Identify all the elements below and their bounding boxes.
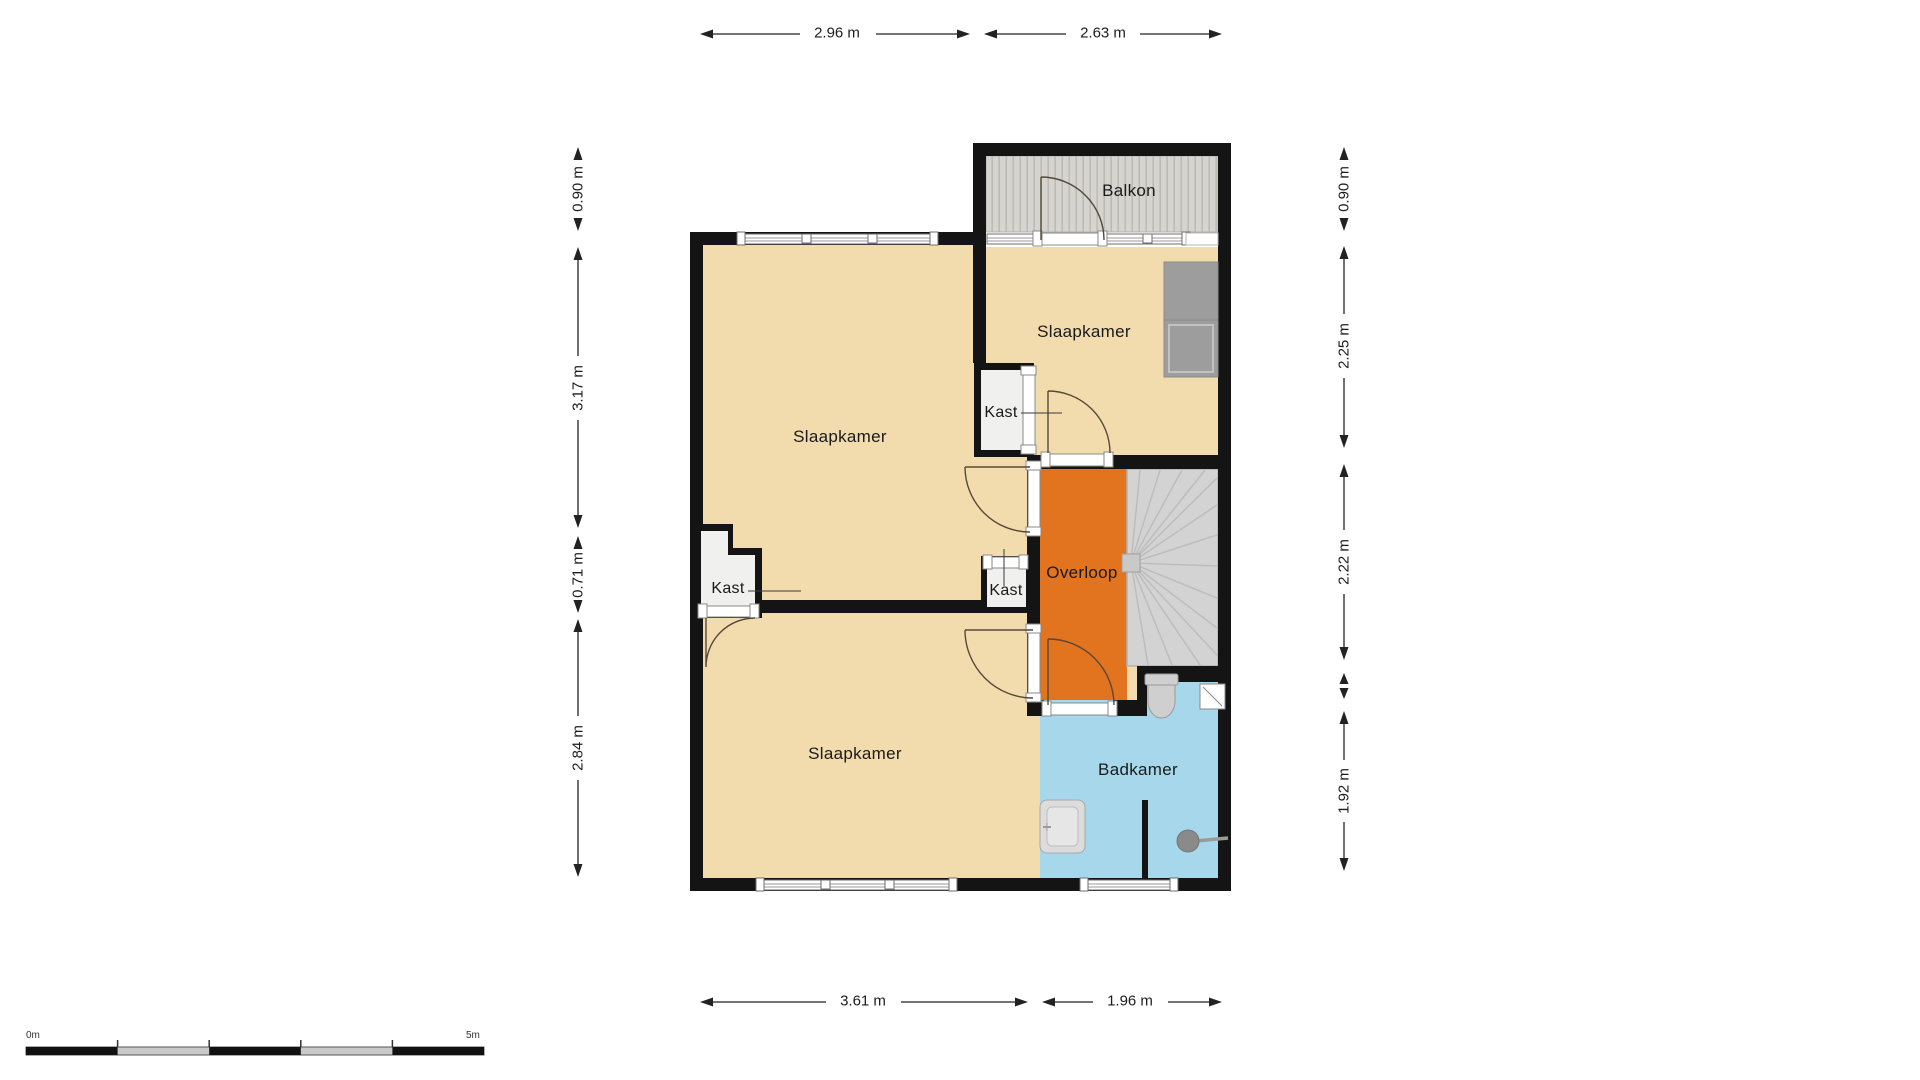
door-closet-center: [983, 555, 1028, 569]
stair-newel: [1122, 554, 1140, 572]
dim-right-4: 1.92 m: [1336, 768, 1353, 814]
dim-bottom-1: 3.61 m: [840, 993, 886, 1010]
room-label-kast-left: Kast: [711, 580, 744, 598]
door-bedroom-top-right: [1041, 452, 1113, 467]
room-label-bedroom-top-right: Slaapkamer: [1037, 322, 1131, 342]
room-label-overloop: Overloop: [1046, 563, 1117, 583]
door-balcony: [1033, 231, 1107, 246]
window-balcony-east: [1104, 232, 1218, 245]
floorplan-drawing: [0, 0, 1920, 1080]
dim-right-1: 0.90 m: [1336, 166, 1353, 212]
corner-basin-icon: [1200, 684, 1225, 709]
dim-right-3: 2.22 m: [1336, 539, 1353, 585]
scale-label-end: 5m: [466, 1030, 480, 1041]
window-balcony-west: [987, 234, 1036, 244]
wardrobe: [1164, 262, 1218, 377]
room-label-kast-center: Kast: [989, 582, 1022, 600]
room-label-badkamer: Badkamer: [1098, 760, 1178, 780]
door-bedroom-bottom: [1026, 624, 1041, 702]
stairs: [1122, 469, 1218, 666]
washbasin-icon: [1040, 800, 1085, 853]
dim-top-1: 2.96 m: [814, 25, 860, 42]
room-label-kast-top: Kast: [984, 404, 1017, 422]
room-label-bedroom-main: Slaapkamer: [793, 427, 887, 447]
dim-top-2: 2.63 m: [1080, 25, 1126, 42]
floorplan-page: Balkon Slaapkamer Slaapkamer Slaapkamer …: [0, 0, 1920, 1080]
dim-left-3: 0.71 m: [570, 552, 587, 598]
room-label-balkon: Balkon: [1102, 181, 1156, 201]
room-label-bedroom-bottom: Slaapkamer: [808, 744, 902, 764]
door-bedroom-main: [1026, 461, 1041, 536]
dim-left-1: 0.90 m: [570, 166, 587, 212]
dim-bottom-2: 1.96 m: [1107, 993, 1153, 1010]
door-closet-left: [698, 604, 759, 618]
scale-label-start: 0m: [26, 1030, 40, 1041]
window-bedroom-main: [737, 232, 938, 245]
dim-left-2: 3.17 m: [570, 365, 587, 411]
window-bathroom: [1080, 878, 1178, 891]
window-bedroom-bottom: [756, 878, 957, 891]
door-closet-top: [1021, 366, 1036, 454]
dim-right-2: 2.25 m: [1336, 323, 1353, 369]
landing-floor: [1040, 469, 1127, 713]
scale-bar: [26, 1040, 484, 1055]
dim-left-4: 2.84 m: [570, 725, 587, 771]
door-bathroom: [1042, 701, 1117, 716]
